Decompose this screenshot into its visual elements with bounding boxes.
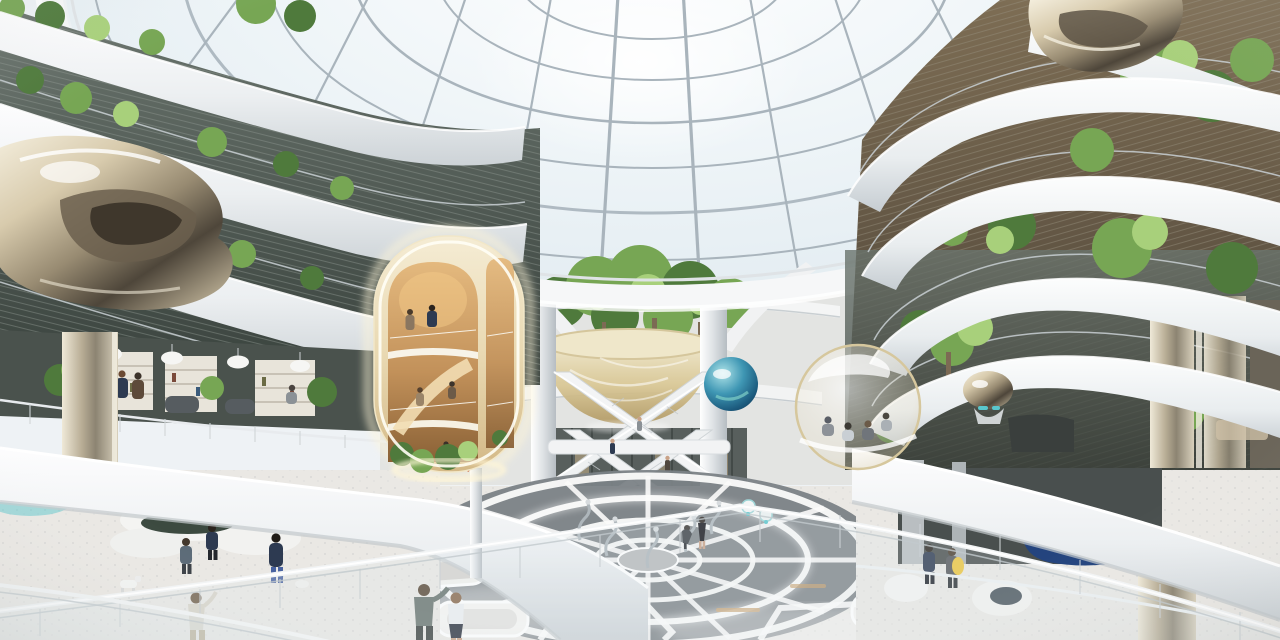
ambient-vignette <box>0 0 1280 640</box>
architectural-rendering <box>0 0 1280 640</box>
